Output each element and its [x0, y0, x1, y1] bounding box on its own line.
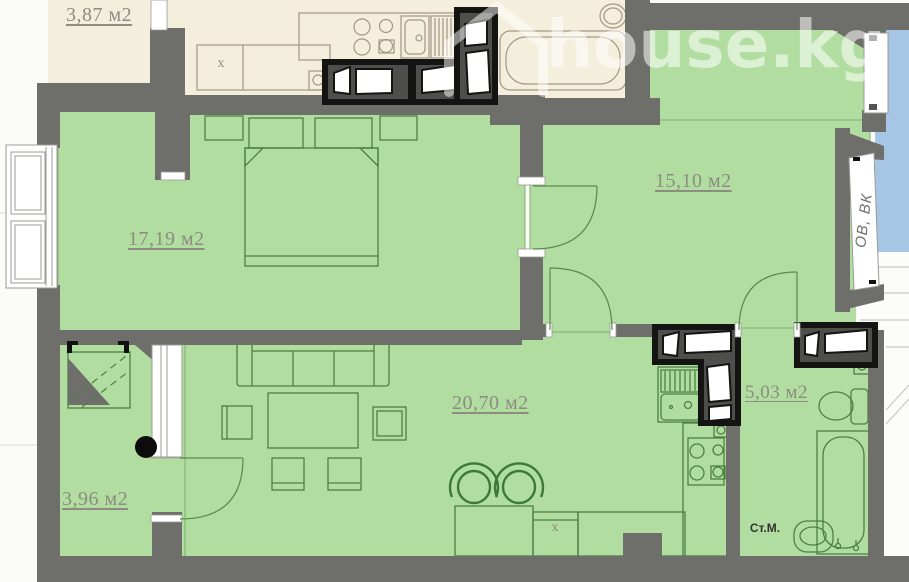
balcony-window: [152, 345, 182, 457]
wall-pier: [155, 112, 190, 180]
wall-stub: [623, 533, 662, 558]
floor-plan: 3,87 м2 17,19 м2 15,10 м2 20,70 м2 5,03 …: [0, 0, 909, 582]
room-label-living: 20,70 м2: [452, 392, 529, 415]
living-area: [160, 332, 745, 560]
room-label-hall: 3,87 м2: [66, 4, 132, 27]
washing-machine-label: Ст.М.: [741, 521, 789, 535]
watermark-text: house.kg: [546, 6, 886, 83]
floor-plan-drawing: [0, 0, 909, 582]
column-dot: [135, 436, 157, 458]
ventilation-shaft: [797, 325, 875, 365]
bedroom-window: [6, 145, 57, 288]
room-label-bathroom: 5,03 м2: [745, 382, 808, 404]
kitchen-marker: x: [212, 56, 230, 72]
room2-area: [530, 115, 870, 335]
room-label-bedroom: 17,19 м2: [128, 228, 205, 251]
room-label-room2: 15,10 м2: [655, 170, 732, 193]
laundry-marker: x: [546, 520, 564, 536]
room-label-balcony: 3,96 м2: [62, 488, 128, 511]
stairwell-area-lower: [884, 252, 909, 558]
bedroom-area: [58, 100, 525, 340]
